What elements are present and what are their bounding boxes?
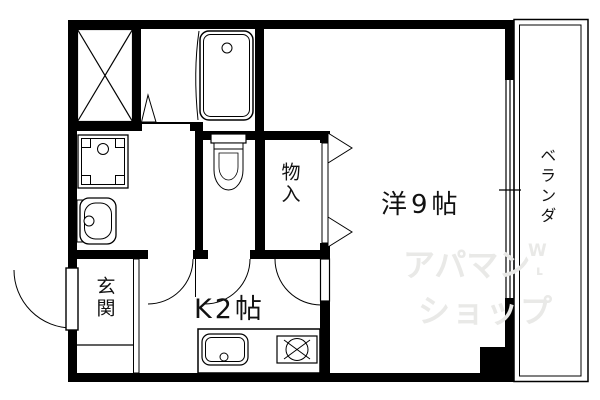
watermark-line2: ショップ [418,295,554,327]
watermark-logo-mark2: ʟ [536,265,543,278]
wall-mainroom-left [320,300,330,373]
toilet [211,134,246,190]
wall-right-upper [505,20,514,80]
room-label-entrance: 玄関 [94,276,115,320]
closet-cross [78,30,133,122]
wall-bottom [68,373,514,382]
room-label-main-room: 洋9帖 [381,191,462,219]
entrance-door-leaf [66,268,78,330]
mainroom-door-arc [275,259,321,305]
floor-plan: アパマン W ʟ ショップ 玄関 物入 ベランダ 洋9帖 K2帖 [0,0,600,400]
tub-deck-line [196,31,199,120]
wall-bath-right [255,20,264,131]
wall-left-upper [68,20,77,268]
entrance-door-arc [14,270,72,328]
sink-drain [220,353,228,361]
bathtub [200,31,253,120]
storage-door-mark-bottom [328,217,352,247]
wall-kitchen-top-right [250,250,330,259]
wall-kitchen-top-left [68,250,148,259]
wall-toilet-left [195,131,203,259]
wall-toilet-right [255,131,265,259]
storage-door-panels [322,143,328,243]
bath-door-mark [142,95,157,122]
tub-drain [222,43,232,53]
corner-pillar [480,347,514,373]
pan-drain [98,144,109,155]
wash-basin [77,198,116,244]
kitchen-counter [198,329,320,373]
wall-kitchen-top-mid [193,250,208,259]
storage-door-mark-top [328,133,352,163]
watermark-logo-mark: W [528,243,547,260]
toilet-seat [219,153,238,180]
watermark-line1: アパマン [403,249,530,281]
mainroom-door-leaf [321,259,330,301]
basin-tap [84,216,94,226]
entrance-divider [134,259,140,373]
washing-machine-pan [78,135,128,188]
wall-closet-bath-post [133,20,141,131]
room-label-kitchen: K2帖 [194,295,265,324]
bath-door-threshold [142,124,190,131]
washroom-door-arc [148,259,193,304]
room-label-veranda: ベランダ [538,147,555,227]
room-label-storage: 物入 [279,162,300,206]
toilet-tank [211,134,246,143]
